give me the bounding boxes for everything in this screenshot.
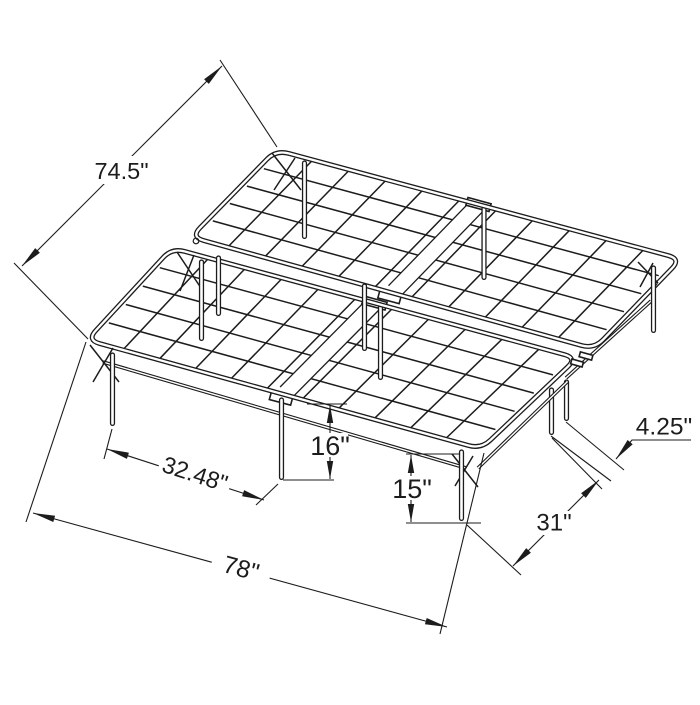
svg-text:31": 31" bbox=[536, 510, 571, 537]
svg-text:4.25": 4.25" bbox=[636, 414, 692, 441]
svg-text:15": 15" bbox=[392, 474, 432, 504]
svg-text:74.5": 74.5" bbox=[94, 158, 148, 184]
svg-text:16": 16" bbox=[310, 431, 350, 461]
